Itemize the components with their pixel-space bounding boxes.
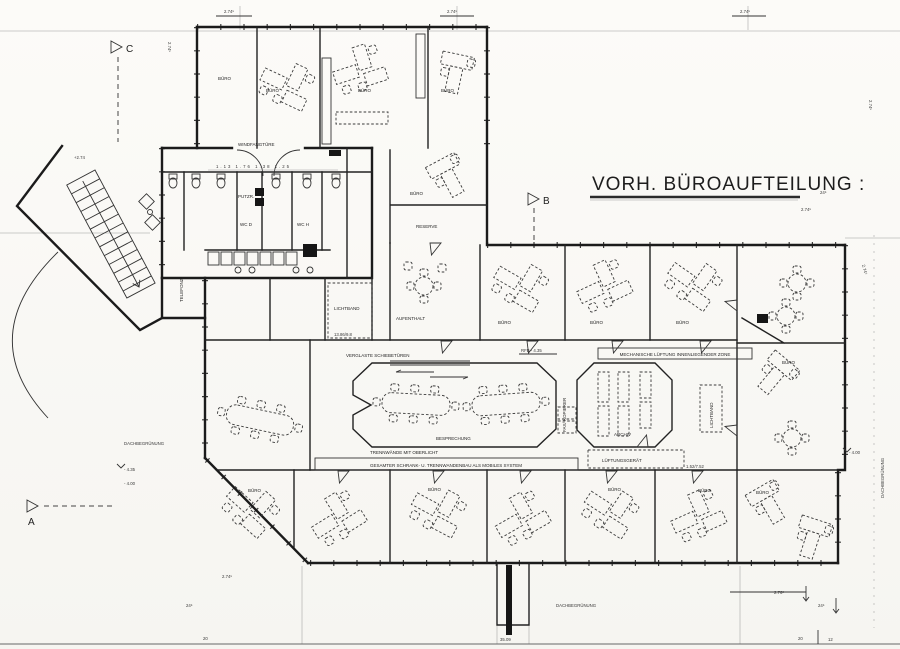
door-swing-icon <box>433 471 444 483</box>
locker-row <box>208 252 297 265</box>
main-block-interior: LICHTBAND 13.86/9.8 AUFENTHALT BÜRO BÜRO… <box>205 243 845 563</box>
door-swing-icon <box>637 435 648 447</box>
room-label-buero: BÜRO <box>498 319 512 325</box>
conference-table <box>214 392 306 447</box>
label-verglaste-schiebetueren: VERGLASTE SCHIEBETÜREN <box>346 352 410 358</box>
dim-274: 2.74⁵ <box>224 9 234 14</box>
section-b-icon <box>528 193 539 205</box>
planter <box>139 194 155 210</box>
blueprint-sheet: VORH. BÜROAUFTEILUNG : C B A BÜRO BÜRO B… <box>0 0 900 649</box>
toilet-icon <box>169 174 177 188</box>
section-a-label: A <box>28 517 35 528</box>
label-mobiles-system: GESAMTER SCHRANK- U. TRENNWANDENBAU ALS … <box>370 463 522 468</box>
main-block-shell <box>205 245 845 635</box>
dim-276: 2.76⁵ <box>774 590 784 595</box>
dim-274: 2.74⁵ <box>167 42 172 52</box>
desk-cluster <box>745 478 794 529</box>
sink-icon <box>249 267 255 273</box>
desk-cluster <box>487 251 553 315</box>
room-label-buero: BÜRO <box>218 75 232 81</box>
section-c-label: C <box>126 44 133 55</box>
label-lueftungsgeraet: LÜFTUNGSGERÄT <box>602 457 642 463</box>
room-label-buero: BÜRO <box>441 87 455 93</box>
sink-icon <box>293 267 299 273</box>
label-dachbegruenung-south: DACHBEGRÜNUNG <box>556 603 597 608</box>
room-label-telefon: TELEFONZ. <box>179 277 184 302</box>
door-swing-icon <box>725 300 737 311</box>
room-label-buero: BÜRO <box>410 190 424 196</box>
dimension-annotations: 2.74⁵ 2.74⁵ 2.74⁵ 2.74⁵ 2.74⁵ 24⁵ 2.74⁵ … <box>167 9 885 644</box>
dim-24: 24⁵ <box>818 603 825 608</box>
room-label-archiv: ARCHIV <box>614 432 631 437</box>
room-label-buero: BÜRO <box>590 319 604 325</box>
room-label-reserve: RESERVE <box>416 224 437 229</box>
room-label-aufenthalt: AUFENTHALT <box>396 316 425 321</box>
stub-wall <box>506 565 512 635</box>
dim-274: 2.74⁵ <box>861 264 869 275</box>
sink-icon <box>235 267 241 273</box>
door-swing-icon <box>338 471 349 483</box>
dim-274: 2.74⁵ <box>222 574 232 579</box>
desk-cluster <box>254 53 319 114</box>
dim-274: 2.74⁵ <box>740 9 750 14</box>
round-table <box>775 421 809 455</box>
label-rfb: RFB - 4.35 <box>521 348 542 353</box>
section-markers: C B A <box>27 41 550 528</box>
room-label-buero: BÜRO <box>358 87 372 93</box>
level-plus-274: +2.74 <box>74 155 85 160</box>
staircase <box>67 170 155 298</box>
label-windfangtuere: WINDFANGTÜRE <box>238 141 275 147</box>
dim-274: 2.74⁵ <box>447 9 457 14</box>
room-label-wc-h: WC H <box>297 222 309 227</box>
room-label-putzraum: PUTZR. <box>238 194 254 199</box>
shaft <box>303 244 317 257</box>
room-label-buero: BÜRO <box>266 87 280 93</box>
upper-wing: BÜRO BÜRO BÜRO BÜRO BÜRO RESERVE <box>162 27 487 255</box>
room-label-buero: BÜRO <box>782 359 796 365</box>
label-mech-lueftung: MECHANISCHE LÜFTUNG INNENLIEGENDER ZONE <box>620 351 731 357</box>
desk-cluster <box>302 486 369 550</box>
round-table <box>769 299 803 333</box>
door-swing-icon <box>692 471 703 483</box>
desk-cluster <box>790 515 834 563</box>
room-label-besprechung: BESPRECHUNG <box>436 436 471 441</box>
label-lichtband: LICHTBAND <box>709 402 714 428</box>
dim-24: 24⁵ <box>820 190 827 195</box>
conference-table <box>372 383 460 425</box>
dim-274: 2.74⁵ <box>801 207 811 212</box>
toilet-icon <box>192 174 200 188</box>
door-swing-icon <box>606 471 617 483</box>
section-c-icon <box>111 41 122 53</box>
planter <box>145 215 161 231</box>
desk-cluster <box>570 255 635 316</box>
door-swing-icon <box>520 471 531 483</box>
toilet-icon <box>332 174 340 188</box>
shaft <box>757 314 768 323</box>
archiv-shelving <box>598 372 651 436</box>
desk-cluster <box>425 152 473 202</box>
door-swing-icon <box>430 243 441 255</box>
room-label-buero: BÜRO <box>676 319 690 325</box>
curved-terrace-edge <box>12 252 58 418</box>
title-block: VORH. BÜROAUFTEILUNG : <box>590 174 865 200</box>
label-trennwaende: TRENNWÄNDE MIT OBERLICHT <box>370 449 438 455</box>
label-lichtband: LICHTBAND <box>334 306 360 311</box>
dim-bottom-20-right: 20 <box>798 636 803 641</box>
central-zone: VERGLASTE SCHIEBETÜREN BESPRECHUNG TRENN… <box>315 348 752 470</box>
dim-bottom-12: 12 <box>828 637 833 642</box>
toilet-icon <box>217 174 225 188</box>
room-label-fax: FAX/ KOPIERER <box>562 397 567 432</box>
level-minus-400-right: - 4.00 <box>849 450 861 455</box>
column <box>148 210 153 215</box>
label-dachbegruenung-east: DACHBEGRÜNUNG <box>880 457 885 498</box>
door-swing-icon <box>725 425 737 436</box>
round-table <box>407 269 441 303</box>
desk-cluster <box>487 486 553 550</box>
floor-plan-svg: VORH. BÜROAUFTEILUNG : C B A BÜRO BÜRO B… <box>0 0 900 649</box>
dim-lueftung: 1.52/7.52 <box>686 464 705 469</box>
shaft <box>255 188 264 196</box>
room-label-buero: BÜRO <box>608 486 622 492</box>
desk-cluster <box>660 249 727 314</box>
room-label-wc-d: WC D <box>240 222 253 227</box>
dim-bottom-20-left: 20 <box>203 636 208 641</box>
door-swing-icon <box>441 341 452 353</box>
wc-core: WINDFANGTÜRE PUTZR. WC D WC H 1.13 1.76 … <box>162 141 372 318</box>
room-label-buero: BÜRO <box>698 487 712 493</box>
toilet-icon <box>303 174 311 188</box>
room-label-buero: BÜRO <box>756 489 770 495</box>
dim-wc: 1.13 1.76 1.38 1.25 <box>216 164 291 169</box>
desk-cluster <box>217 474 284 541</box>
section-b-label: B <box>543 196 550 207</box>
dim-lichtband: 13.86/9.8 <box>334 332 353 337</box>
toilet-icon <box>272 174 280 188</box>
level-minus-435: - 4.35 <box>124 467 136 472</box>
room-label-buero: BÜRO <box>248 487 262 493</box>
label-dachbegruenung-west: DACHBEGRÜNUNG <box>124 441 165 446</box>
desk-cluster <box>664 485 728 546</box>
sink-icon <box>307 267 313 273</box>
stairs-entry: +2.74 DACHBEGRÜNUNG - 4.35 - 4.00 <box>12 146 164 486</box>
section-a-icon <box>27 500 38 512</box>
round-table <box>780 266 814 300</box>
room-label-buero: BÜRO <box>428 486 442 492</box>
shaft <box>329 150 341 156</box>
dim-bottom-3509: 35.09 <box>500 637 511 642</box>
level-minus-400: - 4.00 <box>124 481 136 486</box>
conference-table <box>462 382 550 426</box>
dim-274: 2.74⁵ <box>868 100 873 110</box>
shaft <box>255 198 264 206</box>
dim-24: 24⁵ <box>186 603 193 608</box>
desk-cluster <box>750 350 801 402</box>
